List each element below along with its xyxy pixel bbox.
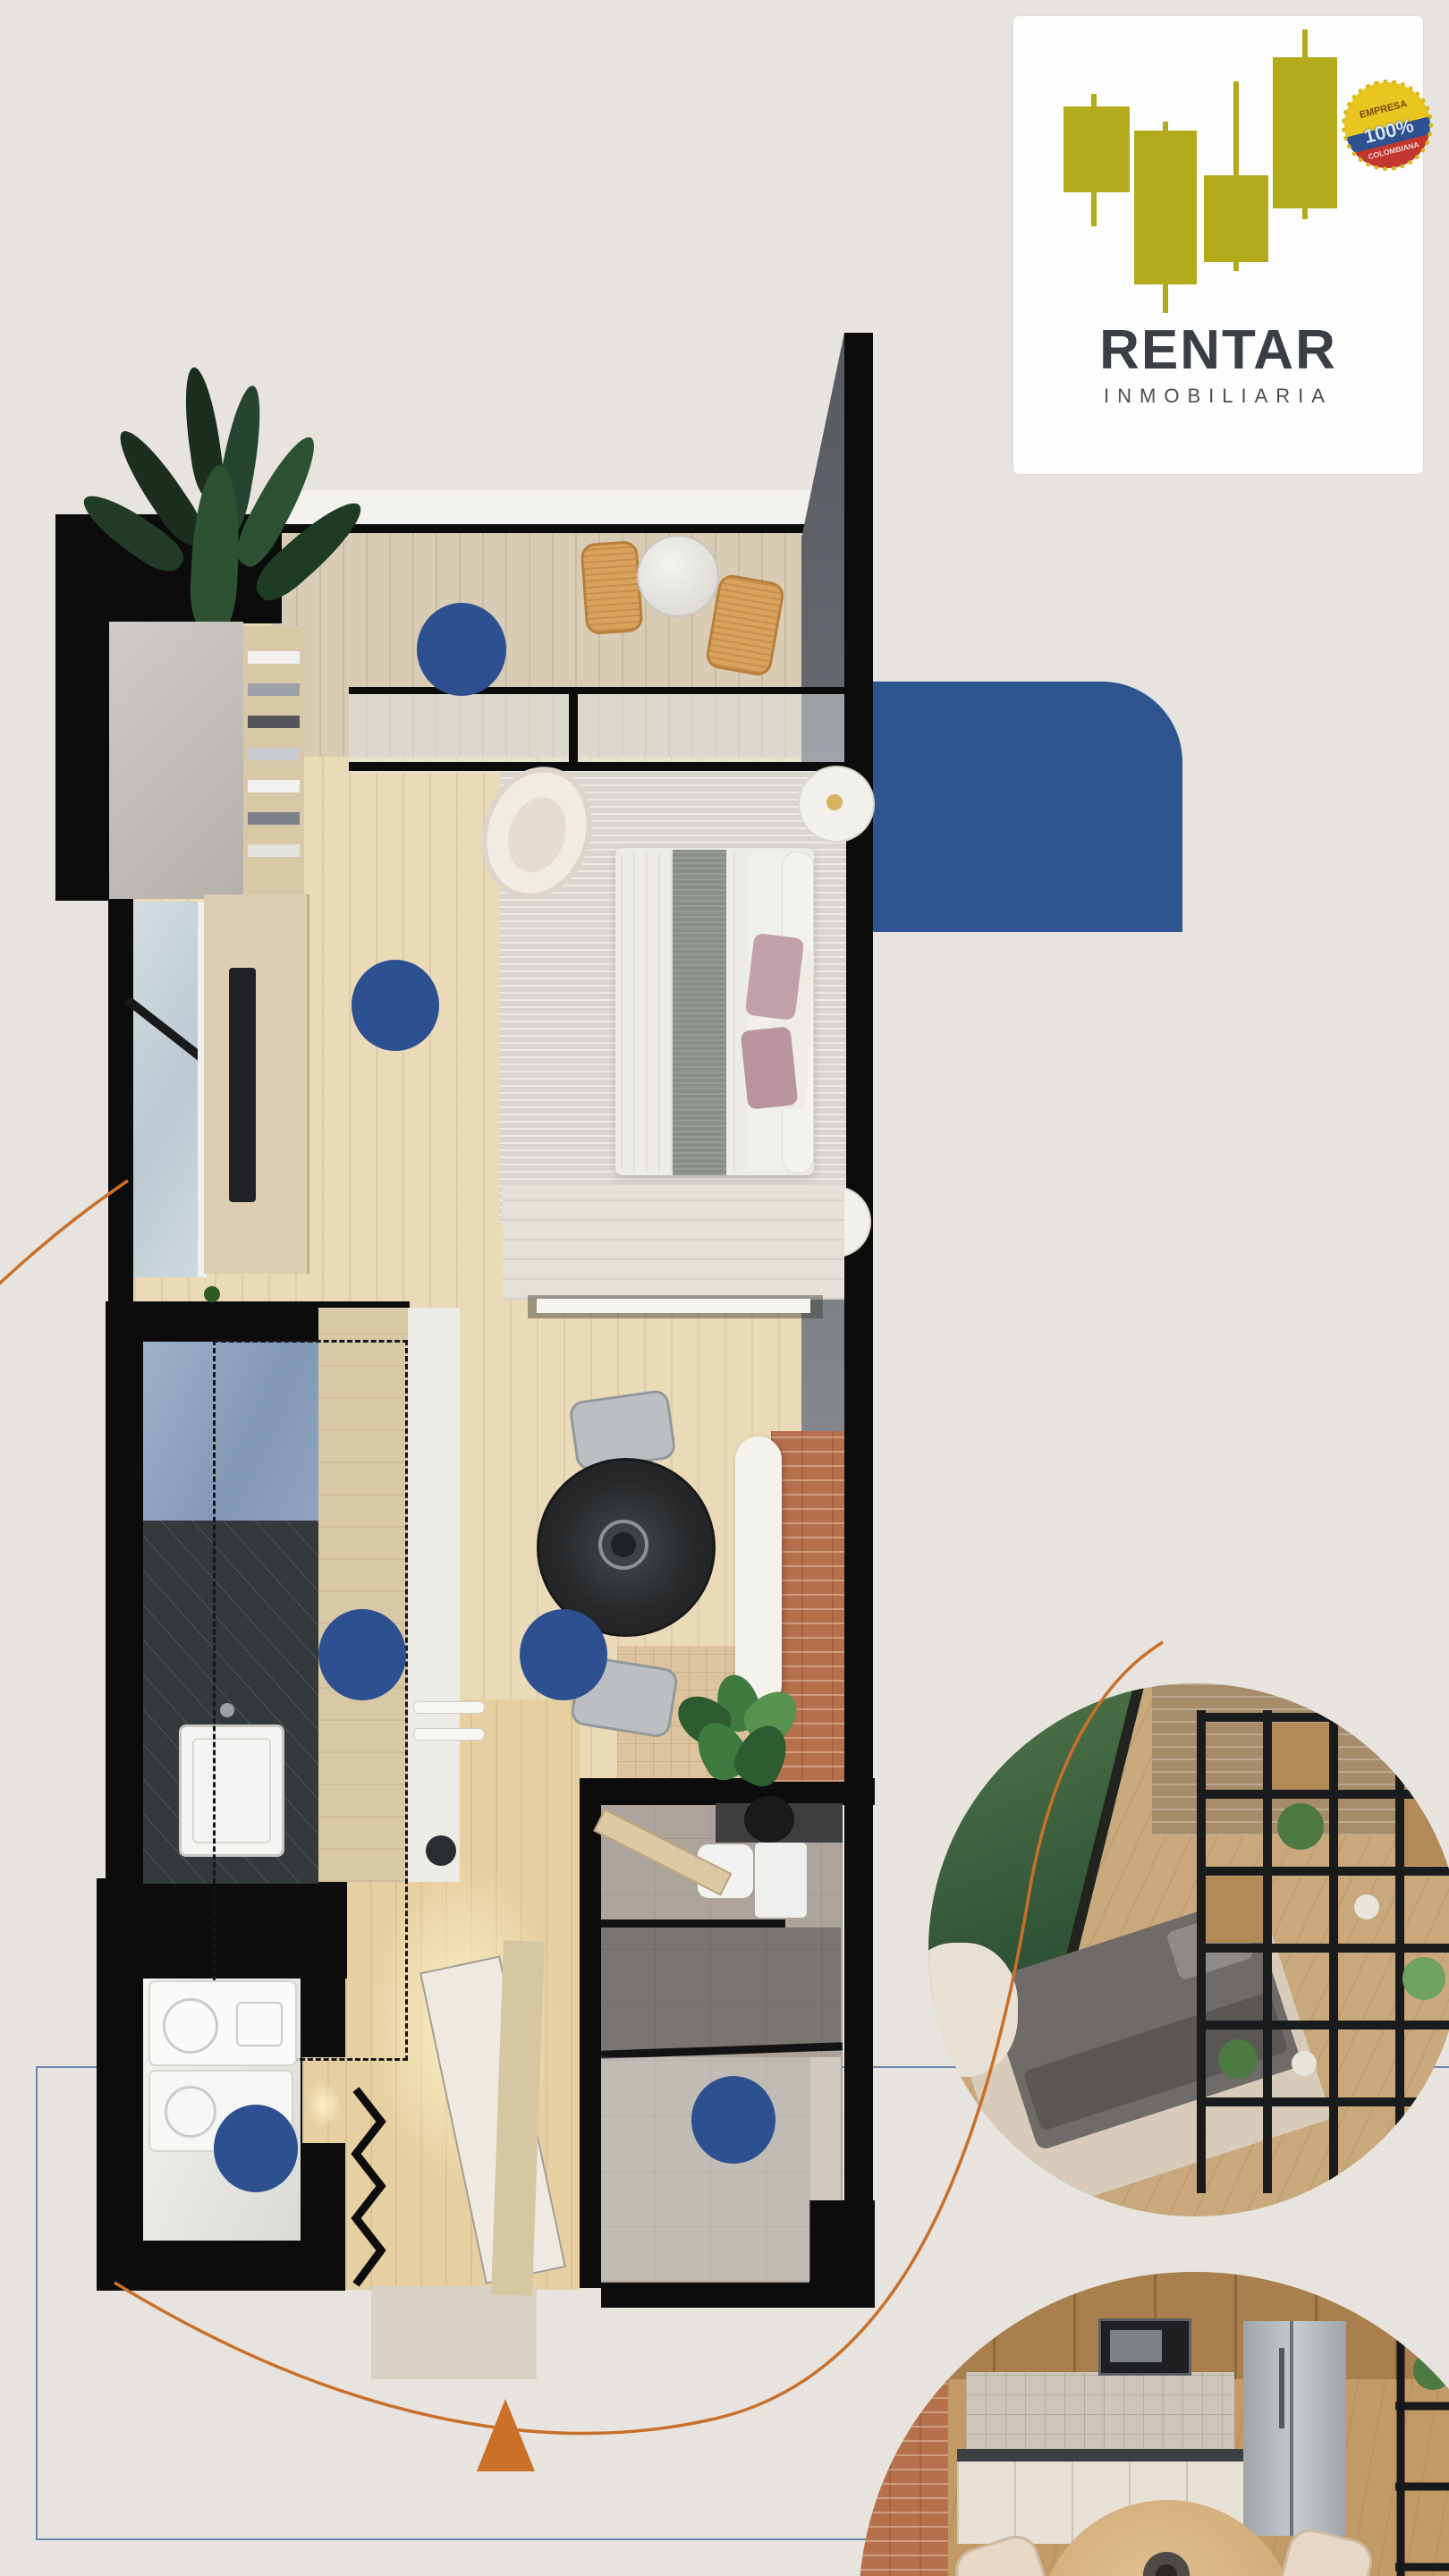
bookshelf <box>243 626 304 902</box>
marker-balcony <box>417 603 506 696</box>
bed <box>615 848 814 1175</box>
photo-inset-kitchen <box>859 2272 1449 2576</box>
flyer-canvas: EMPRESA 100% COLOMBIANA RENTAR INMOBILIA… <box>0 0 1449 2576</box>
render-shelf-grid <box>1197 1710 1449 2193</box>
logo-wordmark: RENTAR <box>1013 318 1423 382</box>
logo-card: EMPRESA 100% COLOMBIANA RENTAR INMOBILIA… <box>1013 16 1423 474</box>
cabinet-projection-dashed <box>213 1340 408 2061</box>
render-shelf-grid-2 <box>1395 2272 1449 2576</box>
washer-1 <box>148 1980 297 2066</box>
oven-knob <box>426 1835 456 1866</box>
dining-plant <box>664 1665 816 1800</box>
balcony-glazing <box>349 687 844 773</box>
render-backsplash <box>966 2372 1234 2454</box>
laundry-door-gap <box>302 2057 345 2143</box>
wall-laundry-bottom <box>97 2241 345 2291</box>
wall-left-upper <box>55 514 109 901</box>
floor-threshold <box>371 2286 537 2379</box>
wine-bottle <box>204 1286 220 1302</box>
render-armchair <box>928 1943 1018 2077</box>
console-slab <box>503 1185 844 1300</box>
balcony-glazing-mullion <box>569 687 578 771</box>
wall-bath-left <box>580 1805 601 2288</box>
wall-kitchen-west <box>106 1344 143 1881</box>
bed-pillow-2 <box>741 1026 799 1109</box>
bed-pillow-1 <box>745 933 805 1021</box>
balcony-glazing-frame-bottom <box>349 762 844 771</box>
marker-dining <box>520 1609 607 1700</box>
nightstand-top-lamp <box>826 794 843 810</box>
render-brick-column <box>859 2272 948 2576</box>
bedroom-window-glass <box>133 902 198 1277</box>
tv-screen <box>229 968 256 1202</box>
balcony-plant <box>107 358 358 653</box>
balcony-chair-1 <box>580 540 644 635</box>
console-light-strip <box>537 1299 810 1313</box>
logo-tagline: INMOBILIARIA <box>1013 385 1423 408</box>
bath-vessel-sink <box>744 1796 794 1843</box>
wall-laundry-left <box>97 1979 143 2243</box>
marker-bathroom <box>691 2076 775 2164</box>
shoe-rack-zigzag <box>345 2086 388 2293</box>
marker-laundry <box>214 2105 298 2192</box>
shower-tint <box>601 1928 841 2051</box>
render-plant <box>1342 2567 1449 2576</box>
marker-bedroom <box>352 960 439 1051</box>
marker-kitchen <box>318 1609 406 1700</box>
balcony-table <box>637 535 719 617</box>
render-fridge <box>1243 2321 1346 2536</box>
kitchen-column-white <box>408 1308 460 1882</box>
balcony-glazing-frame-top <box>349 687 844 694</box>
photo-inset-bedroom <box>928 1683 1449 2216</box>
tv-console <box>204 894 309 1274</box>
oven-handle-1 <box>413 1701 485 1714</box>
wall-left-window-frame <box>108 899 133 1339</box>
wardrobe <box>109 622 243 899</box>
render-microwave <box>1098 2318 1191 2376</box>
shower-glass-line-1 <box>601 1919 785 1928</box>
bed-blanket <box>673 850 726 1175</box>
toilet-tank <box>755 1843 807 1918</box>
oven-handle-2 <box>413 1728 485 1741</box>
wall-right <box>844 333 873 2297</box>
shower-curb <box>810 2057 841 2200</box>
